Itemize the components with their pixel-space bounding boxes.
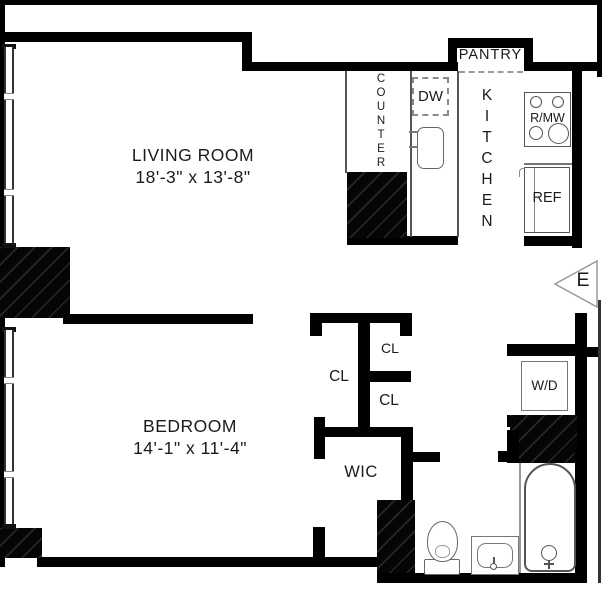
kitchen-edge-left	[457, 71, 459, 237]
wall-closet-mid	[368, 371, 411, 382]
appliance-shelf-line	[524, 163, 572, 165]
wall-bath-right	[575, 450, 587, 583]
wall-kitchen-right	[572, 66, 582, 248]
wall-kitchen-bottom-right	[524, 236, 582, 246]
wall-wic-right	[401, 427, 413, 507]
east-marker-label: E	[570, 269, 596, 291]
window-mullion	[4, 93, 14, 100]
wall-bedroom-top	[63, 314, 253, 324]
wall-mid-top	[242, 62, 458, 71]
wall-right-of-pantry	[524, 62, 602, 71]
refrigerator-label: REF	[524, 190, 570, 207]
tub-drain-icon	[541, 545, 557, 561]
faucet-tick	[409, 131, 418, 133]
dishwasher: DW	[412, 77, 449, 116]
tub-surround-line	[519, 463, 521, 573]
wall-outer-right-bottom	[598, 300, 601, 583]
washer-dryer-label: W/D	[531, 378, 557, 394]
dishwasher-label: DW	[418, 88, 443, 105]
burner-icon	[530, 96, 542, 108]
window-mullion	[4, 471, 14, 478]
pantry-opening-line	[459, 71, 523, 73]
wall-wic-cap-upper	[314, 417, 325, 459]
kitchen-label: K I T C H E N	[477, 85, 497, 232]
wall-outer-top	[0, 0, 602, 5]
burner-icon	[529, 126, 543, 140]
living-room-dims: 18'-3" x 13'-8"	[88, 167, 298, 187]
wall-wic-cap-lower	[313, 527, 325, 567]
wic-corner-mass	[377, 500, 415, 583]
counter-base-block	[347, 172, 407, 238]
range-microwave-label: R/MW	[524, 111, 571, 125]
faucet-tick	[409, 146, 418, 148]
window-cap	[2, 243, 16, 248]
window-mullion	[4, 377, 14, 384]
tub-faucet-icon	[544, 563, 554, 565]
closet-label-left: CL	[318, 368, 360, 386]
closet-label-top: CL	[372, 340, 408, 356]
wall-wic-top	[320, 427, 412, 437]
sink-faucet-icon	[490, 563, 497, 570]
wall-hall	[507, 344, 577, 356]
wall-bedroom-bottom	[37, 557, 383, 567]
counter-edge-left	[345, 71, 347, 173]
window-cap	[2, 524, 16, 529]
burner-icon	[548, 123, 569, 144]
wall-closet-cap-right	[400, 313, 412, 336]
kitchen-sink	[417, 127, 444, 169]
bedroom-window	[4, 330, 14, 527]
mass-below-wd	[510, 415, 577, 463]
structural-block-bottom-left	[0, 528, 42, 558]
toilet-seat-icon	[435, 545, 450, 558]
bedroom-label: BEDROOM 14'-1" x 11'-4"	[85, 416, 295, 458]
window-mullion	[4, 189, 14, 196]
wall-bath-top-stub	[410, 452, 440, 462]
living-room-name: LIVING ROOM	[88, 145, 298, 165]
counter-label: C O U N T E R	[373, 72, 389, 170]
wall-hall-nub	[587, 347, 598, 357]
wic-label: WIC	[330, 463, 392, 482]
wall-closet-cap-left	[310, 313, 322, 336]
wall-living-top	[0, 32, 249, 42]
wall-bath-top-right-h	[498, 451, 512, 462]
bedroom-dims: 14'-1" x 11'-4"	[85, 438, 295, 458]
bedroom-name: BEDROOM	[85, 416, 295, 436]
closet-label-bottom: CL	[368, 392, 410, 410]
pantry-label: PANTRY	[448, 47, 533, 64]
floor-plan: DW R/MW REF W/D E LIVING ROOM 18'-3" x 1…	[0, 0, 602, 601]
refrigerator-handle-icon	[519, 168, 525, 177]
living-room-label: LIVING ROOM 18'-3" x 13'-8"	[88, 145, 298, 187]
washer-dryer: W/D	[521, 361, 568, 411]
living-room-window	[4, 47, 14, 247]
structural-column	[0, 247, 70, 318]
burner-icon	[552, 96, 564, 108]
